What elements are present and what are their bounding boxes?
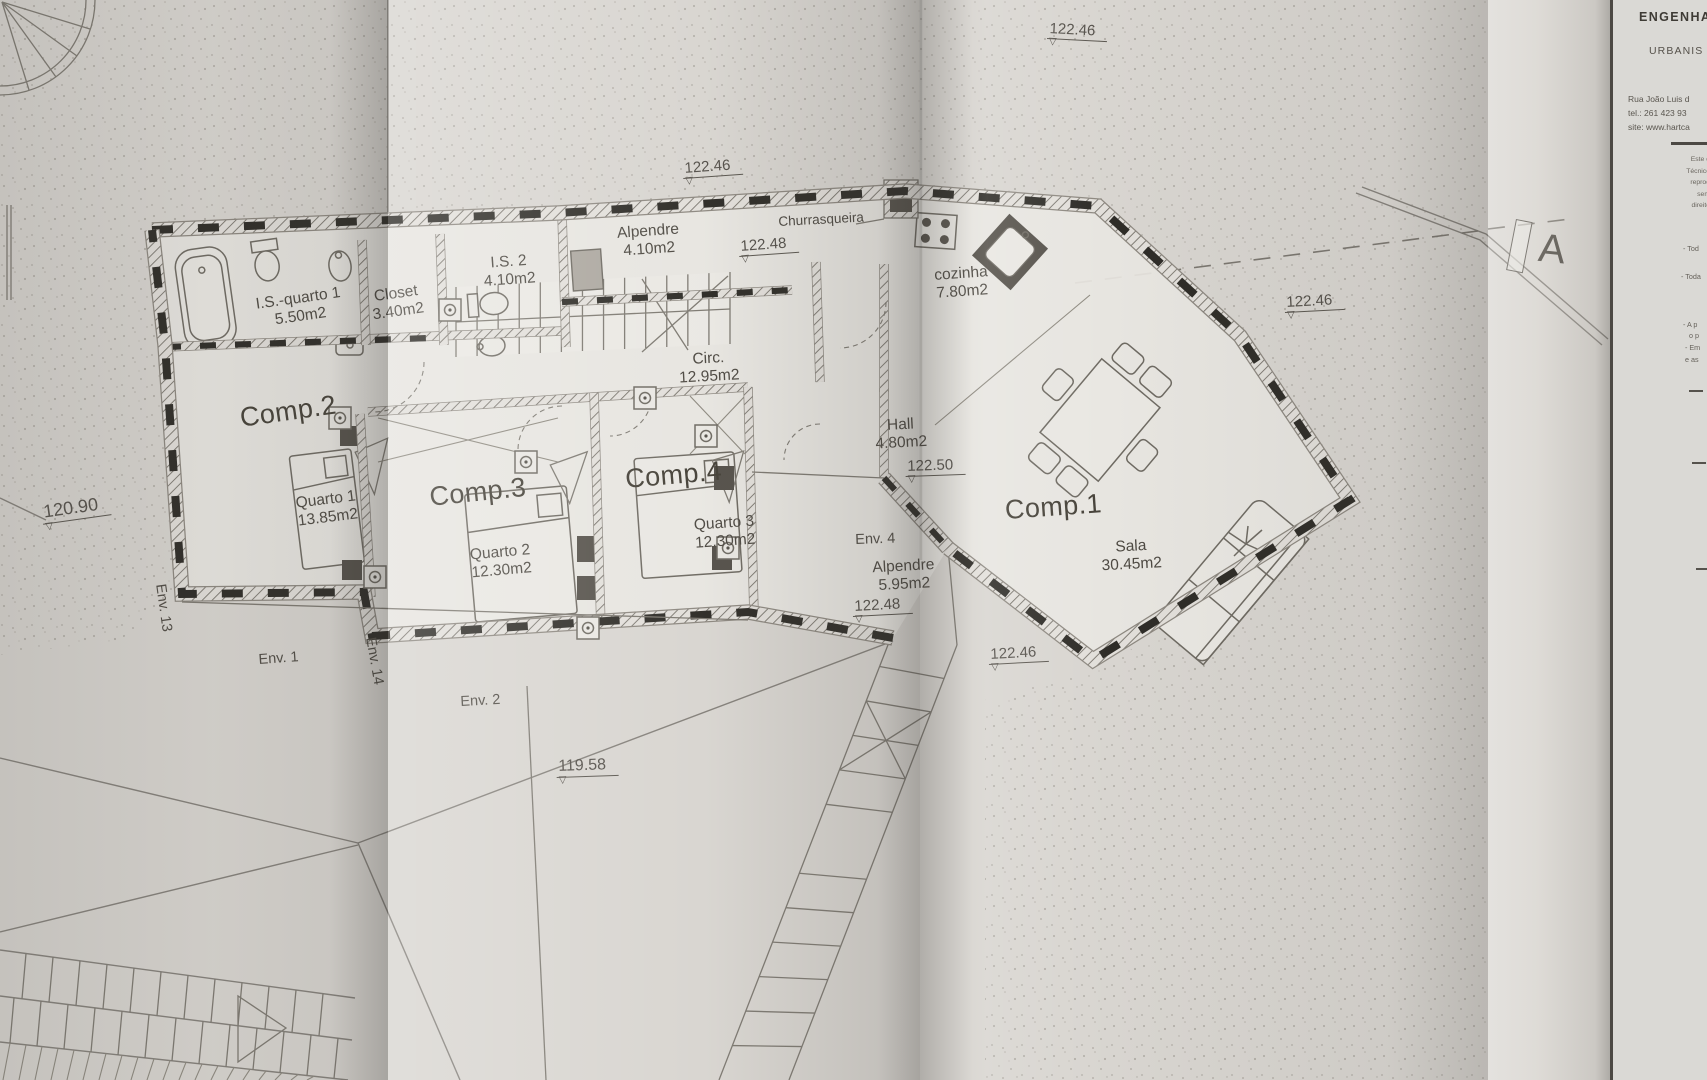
tel-line: tel.: 261 423 93 [1628,108,1687,118]
exterior-stair [719,632,957,1080]
env-label-2: Env. 2 [460,692,501,710]
env-label-4: Env. 4 [855,531,896,548]
room-label-comp1: Comp.1 [1004,488,1103,527]
note-line: e as [1685,355,1699,364]
floor-plan-drawing [0,0,1707,1080]
note-line: - Tod [1683,244,1699,253]
disclaimer-text: Este d Técnico reprod sem direito [1668,154,1707,212]
shower-icon [571,249,604,291]
room-label-quarto3: Quarto 3 12.30m2 [676,511,773,554]
site-line: site: www.hartca [1628,122,1690,132]
level-marker-porch: 122.48 ▽ [852,595,913,625]
level-marker-hall: 122.50 ▽ [905,456,966,485]
company-subtitle: URBANIS [1649,45,1703,57]
title-block-divider [1671,142,1707,145]
room-area: 4.80m2 [866,433,937,455]
note-line: - Em [1685,343,1700,352]
disclaimer-line: Este d [1691,156,1707,163]
level-marker-stair: 122.46 ▽ [988,643,1049,673]
level-marker-right: 122.46 ▽ [1284,291,1345,321]
disclaimer-line: Técnico [1686,168,1707,175]
env-text: Env. 2 [460,692,501,710]
room-label-is2: I.S. 2 4.10m2 [468,250,550,292]
site-walkway-steps [0,950,355,1080]
note-line: - A p [1683,320,1697,329]
company-name: ENGENHA [1639,10,1707,24]
title-block: ENGENHA URBANIS Rua João Luis d tel.: 26… [1610,0,1707,1080]
env-label-1: Env. 1 [258,649,299,668]
disclaimer-line: reprod [1690,179,1707,186]
room-label-cozinha: cozinha 7.80m2 [918,262,1005,304]
env-text: Env. 1 [258,649,299,668]
row-divider-tick [1696,568,1707,570]
level-marker-alpendre: 122.46 ▽ [682,156,744,187]
section-marker-a: A [1536,226,1567,274]
company-address: Rua João Luis d tel.: 261 423 93 site: w… [1628,92,1690,134]
address-line: Rua João Luis d [1628,94,1689,104]
disclaimer-line: direito [1691,202,1707,209]
disclaimer-line: sem [1697,191,1707,198]
room-label-alpendre-low: Alpendre 5.95m2 [858,555,950,596]
note-line: o p [1689,331,1699,340]
level-marker-top-right: 122.46 ▽ [1047,20,1108,50]
env-text: Env. 4 [855,531,896,548]
section-letter: A [1536,226,1567,273]
level-marker-south: 119.58 ▽ [556,756,619,787]
room-label-circ: Circ. 12.95m2 [668,348,750,389]
room-label-sala: Sala 30.45m2 [1088,536,1175,577]
room-name: Comp.1 [1004,488,1103,527]
note-line: - Toda [1681,272,1701,281]
row-divider-tick [1689,390,1703,392]
floor-plan-photo: Comp.2 Comp.3 Comp.4 Comp.1 I.S.-quarto … [0,0,1707,1080]
room-label-hall: Hall 4.80m2 [865,414,937,454]
row-divider-tick [1692,462,1706,464]
room-label-alpendre-top: Alpendre 4.10m2 [600,219,697,262]
level-marker-alpendre-2: 122.48 ▽ [738,234,800,265]
